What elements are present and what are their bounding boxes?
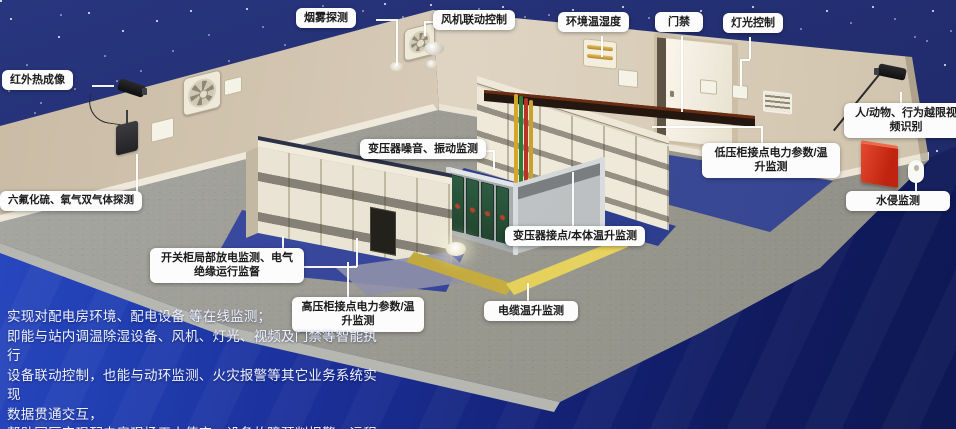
transformer-panel	[466, 178, 479, 237]
description-line: 帮助园区实现配电房现场无人值守、设备故障预判报警，远程诊	[7, 424, 387, 429]
camera-body	[877, 63, 907, 81]
smoke-sensor-icon	[426, 60, 437, 68]
heater-tube	[587, 45, 613, 52]
transformer-panel	[481, 181, 494, 240]
callout-smoke-detection: 烟雾探测	[296, 8, 356, 28]
callout-sf6-o2-gas-detection: 六氟化硫、氧气双气体探测	[0, 191, 142, 211]
callout-person-animal-video-recognition: 人/动物、行为越限视频识别	[844, 103, 956, 138]
callout-fan-linkage-control: 风机联动控制	[433, 10, 515, 30]
description-line: 即能与站内调温除湿设备、风机、灯光、视频及门禁等智能执行	[7, 327, 387, 366]
leader-line	[356, 238, 358, 267]
description-line: 数据贯通交互，	[7, 405, 387, 425]
cctv-camera-icon	[872, 58, 916, 88]
water-sensor-icon	[908, 160, 924, 183]
leader-line	[740, 59, 750, 61]
fire-cabinet-icon	[861, 140, 898, 188]
door-handle-icon	[670, 91, 674, 97]
door-gap	[657, 37, 666, 140]
camera-lens	[142, 88, 147, 95]
callout-water-intrusion: 水侵监测	[846, 191, 950, 211]
description-text: 实现对配电房环境、配电设备 等在线监测； 即能与站内调温除湿设备、风机、灯光、视…	[7, 307, 387, 429]
leader-line	[652, 126, 762, 128]
leader-line	[396, 19, 398, 66]
leader-line	[572, 172, 574, 227]
leader-line	[601, 36, 603, 57]
leader-line	[92, 85, 114, 87]
callout-cable-temp-monitoring: 电缆温升监测	[484, 301, 578, 321]
cable-green	[519, 96, 523, 192]
power-room-diagram: 烟雾探测 风机联动控制 环境温湿度 门禁 灯光控制 红外热成像 六氟化硫、氧气双…	[0, 0, 956, 429]
callout-transformer-noise-vibration: 变压器噪音、振动监测	[360, 139, 486, 159]
callout-infrared-thermal-imaging: 红外热成像	[2, 70, 73, 90]
open-cabinet-door	[370, 207, 396, 256]
heater-tube	[587, 54, 613, 61]
stars-dim	[0, 0, 2, 2]
leader-line	[347, 262, 349, 299]
floor-lamp-icon	[446, 242, 466, 256]
leader-line	[136, 154, 138, 192]
water-sensor-dot	[914, 165, 919, 171]
callout-transformer-contact-body-temp: 变压器接点/本体温升监测	[505, 226, 645, 246]
leader-line	[424, 21, 426, 36]
leader-line	[749, 37, 751, 59]
description-line: 实现对配电房环境、配电设备 等在线监测；	[7, 307, 387, 327]
cable-red	[524, 98, 528, 192]
callout-door-access: 门禁	[655, 12, 703, 32]
wall-panel	[700, 79, 717, 95]
door	[654, 34, 738, 151]
door-leaf	[666, 38, 732, 147]
thermostat-panel	[618, 69, 638, 88]
leader-line	[681, 36, 683, 112]
cable-yellow	[514, 94, 518, 192]
callout-switchgear-partial-discharge: 开关柜局部放电监测、电气绝缘运行监督	[150, 248, 304, 283]
dome-sensor-icon	[424, 42, 444, 55]
description-line: 设备联动控制，也能与动环监测、火灾报警等其它业务系统实现	[7, 366, 387, 405]
heater-tubes-icon	[583, 38, 617, 70]
leader-line	[376, 19, 397, 21]
leader-line	[527, 283, 529, 302]
callout-light-control: 灯光控制	[723, 13, 783, 33]
leader-line	[493, 150, 495, 170]
gas-detector-icon	[116, 120, 138, 155]
leader-line	[740, 59, 742, 87]
transformer-panel	[451, 174, 464, 233]
camera-lens	[874, 68, 879, 75]
enclosure-post	[600, 157, 605, 229]
callout-lv-cabinet-power-temp: 低压柜接点电力参数/温升监测	[702, 143, 840, 178]
callout-env-temp-humidity: 环境温湿度	[558, 12, 629, 32]
vent-grille-icon	[763, 90, 792, 114]
